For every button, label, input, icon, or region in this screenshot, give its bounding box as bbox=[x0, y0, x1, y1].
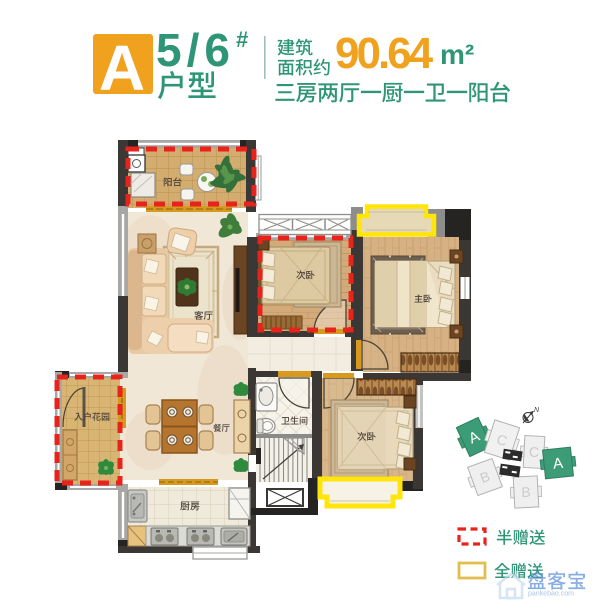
svg-text:A: A bbox=[552, 455, 564, 473]
svg-text:B: B bbox=[521, 484, 531, 500]
svg-text:#: # bbox=[236, 27, 248, 52]
svg-text:C: C bbox=[529, 444, 540, 461]
svg-text:5/6: 5/6 bbox=[156, 24, 235, 76]
svg-text:90.64: 90.64 bbox=[335, 29, 434, 78]
svg-text:A: A bbox=[99, 32, 145, 104]
svg-text:pankebao.com: pankebao.com bbox=[528, 591, 574, 598]
svg-text:m²: m² bbox=[440, 39, 474, 70]
